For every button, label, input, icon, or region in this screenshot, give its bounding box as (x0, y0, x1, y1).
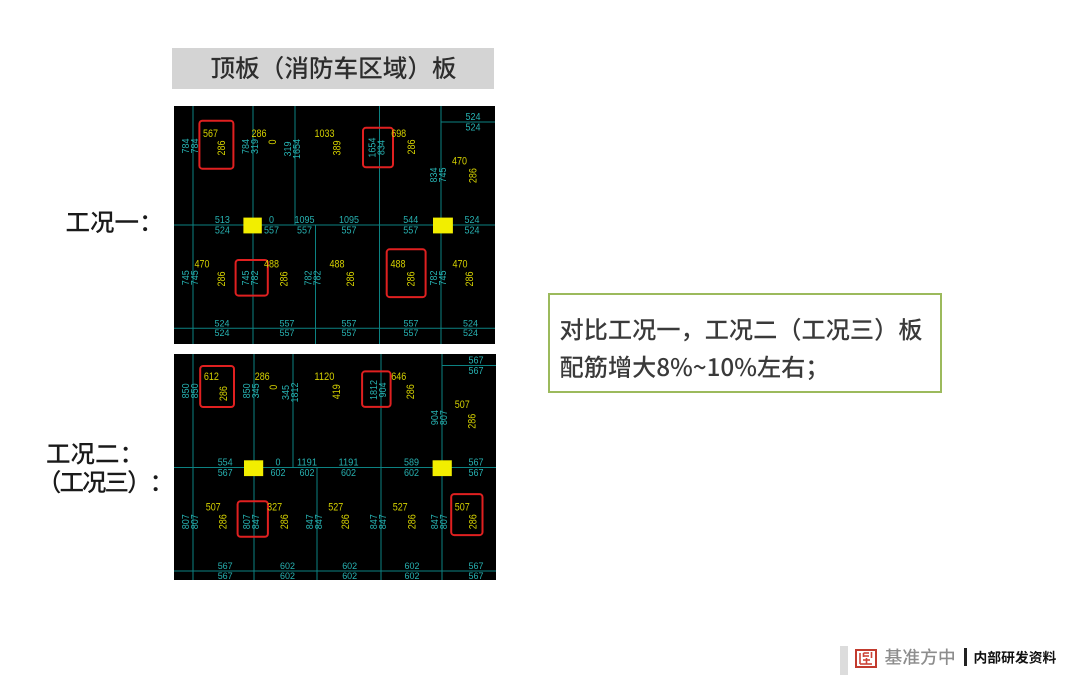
svg-text:0: 0 (267, 140, 279, 145)
svg-text:557: 557 (342, 328, 357, 339)
svg-text:327: 327 (267, 502, 282, 514)
svg-text:286: 286 (218, 386, 230, 401)
svg-text:507: 507 (206, 502, 221, 514)
svg-text:784: 784 (190, 138, 201, 153)
svg-text:470: 470 (452, 156, 467, 168)
svg-text:698: 698 (391, 128, 406, 140)
svg-text:557: 557 (280, 328, 295, 339)
svg-text:602: 602 (280, 571, 295, 580)
svg-text:1654: 1654 (292, 139, 303, 159)
svg-text:286: 286 (407, 514, 419, 529)
svg-text:286: 286 (252, 128, 267, 140)
svg-text:319: 319 (250, 139, 261, 154)
svg-text:567: 567 (218, 467, 233, 479)
svg-text:524: 524 (215, 225, 230, 237)
svg-text:745: 745 (190, 270, 201, 285)
svg-text:286: 286 (279, 514, 291, 529)
svg-text:1120: 1120 (314, 371, 334, 383)
svg-text:389: 389 (332, 141, 344, 156)
svg-text:745: 745 (438, 270, 449, 285)
svg-text:286: 286 (468, 168, 480, 183)
svg-text:602: 602 (341, 467, 356, 479)
svg-text:567: 567 (469, 467, 484, 479)
svg-text:488: 488 (391, 259, 406, 271)
svg-text:286: 286 (345, 272, 357, 287)
svg-text:567: 567 (203, 128, 218, 140)
svg-text:567: 567 (469, 571, 484, 580)
svg-text:286: 286 (340, 514, 352, 529)
svg-text:286: 286 (468, 514, 480, 529)
svg-text:286: 286 (406, 140, 418, 155)
svg-text:1033: 1033 (315, 128, 335, 140)
svg-text:527: 527 (328, 502, 343, 514)
svg-text:488: 488 (264, 259, 279, 271)
svg-text:286: 286 (464, 272, 476, 287)
svg-text:646: 646 (391, 371, 406, 383)
svg-text:557: 557 (403, 225, 418, 237)
svg-text:745: 745 (438, 167, 449, 182)
svg-text:850: 850 (190, 383, 201, 398)
svg-text:507: 507 (455, 399, 470, 411)
svg-text:557: 557 (264, 225, 279, 237)
svg-text:807: 807 (439, 410, 450, 425)
svg-text:904: 904 (378, 382, 389, 397)
svg-text:602: 602 (271, 467, 286, 479)
svg-text:470: 470 (453, 259, 468, 271)
svg-text:286: 286 (216, 141, 228, 156)
svg-text:286: 286 (466, 414, 478, 429)
svg-text:834: 834 (377, 140, 388, 155)
svg-text:488: 488 (330, 259, 345, 271)
svg-text:524: 524 (466, 112, 481, 123)
svg-text:286: 286 (216, 272, 228, 287)
svg-text:286: 286 (406, 272, 418, 287)
svg-text:1812: 1812 (290, 382, 301, 402)
svg-text:782: 782 (313, 270, 324, 285)
svg-text:557: 557 (297, 225, 312, 237)
svg-text:567: 567 (469, 366, 484, 377)
svg-text:807: 807 (439, 514, 450, 529)
svg-text:507: 507 (455, 502, 470, 514)
svg-text:286: 286 (405, 384, 417, 399)
svg-text:419: 419 (331, 384, 343, 399)
svg-text:470: 470 (195, 259, 210, 271)
svg-text:612: 612 (204, 371, 219, 383)
svg-text:847: 847 (314, 514, 325, 529)
svg-text:286: 286 (255, 371, 270, 383)
svg-text:847: 847 (378, 514, 389, 529)
svg-text:345: 345 (251, 383, 262, 398)
svg-text:527: 527 (393, 502, 408, 514)
svg-text:602: 602 (342, 571, 357, 580)
svg-text:847: 847 (251, 514, 262, 529)
svg-text:524: 524 (463, 328, 478, 339)
svg-text:807: 807 (190, 514, 201, 529)
svg-text:567: 567 (469, 356, 484, 367)
svg-text:286: 286 (279, 272, 291, 287)
svg-text:557: 557 (342, 225, 357, 237)
svg-text:0: 0 (268, 385, 280, 390)
svg-text:602: 602 (300, 467, 315, 479)
svg-text:524: 524 (465, 225, 480, 237)
svg-text:602: 602 (404, 467, 419, 479)
svg-text:557: 557 (404, 328, 419, 339)
svg-text:567: 567 (218, 571, 233, 580)
svg-text:524: 524 (466, 123, 481, 134)
svg-text:602: 602 (405, 571, 420, 580)
svg-text:524: 524 (215, 328, 230, 339)
svg-text:782: 782 (250, 270, 261, 285)
svg-text:286: 286 (217, 514, 229, 529)
